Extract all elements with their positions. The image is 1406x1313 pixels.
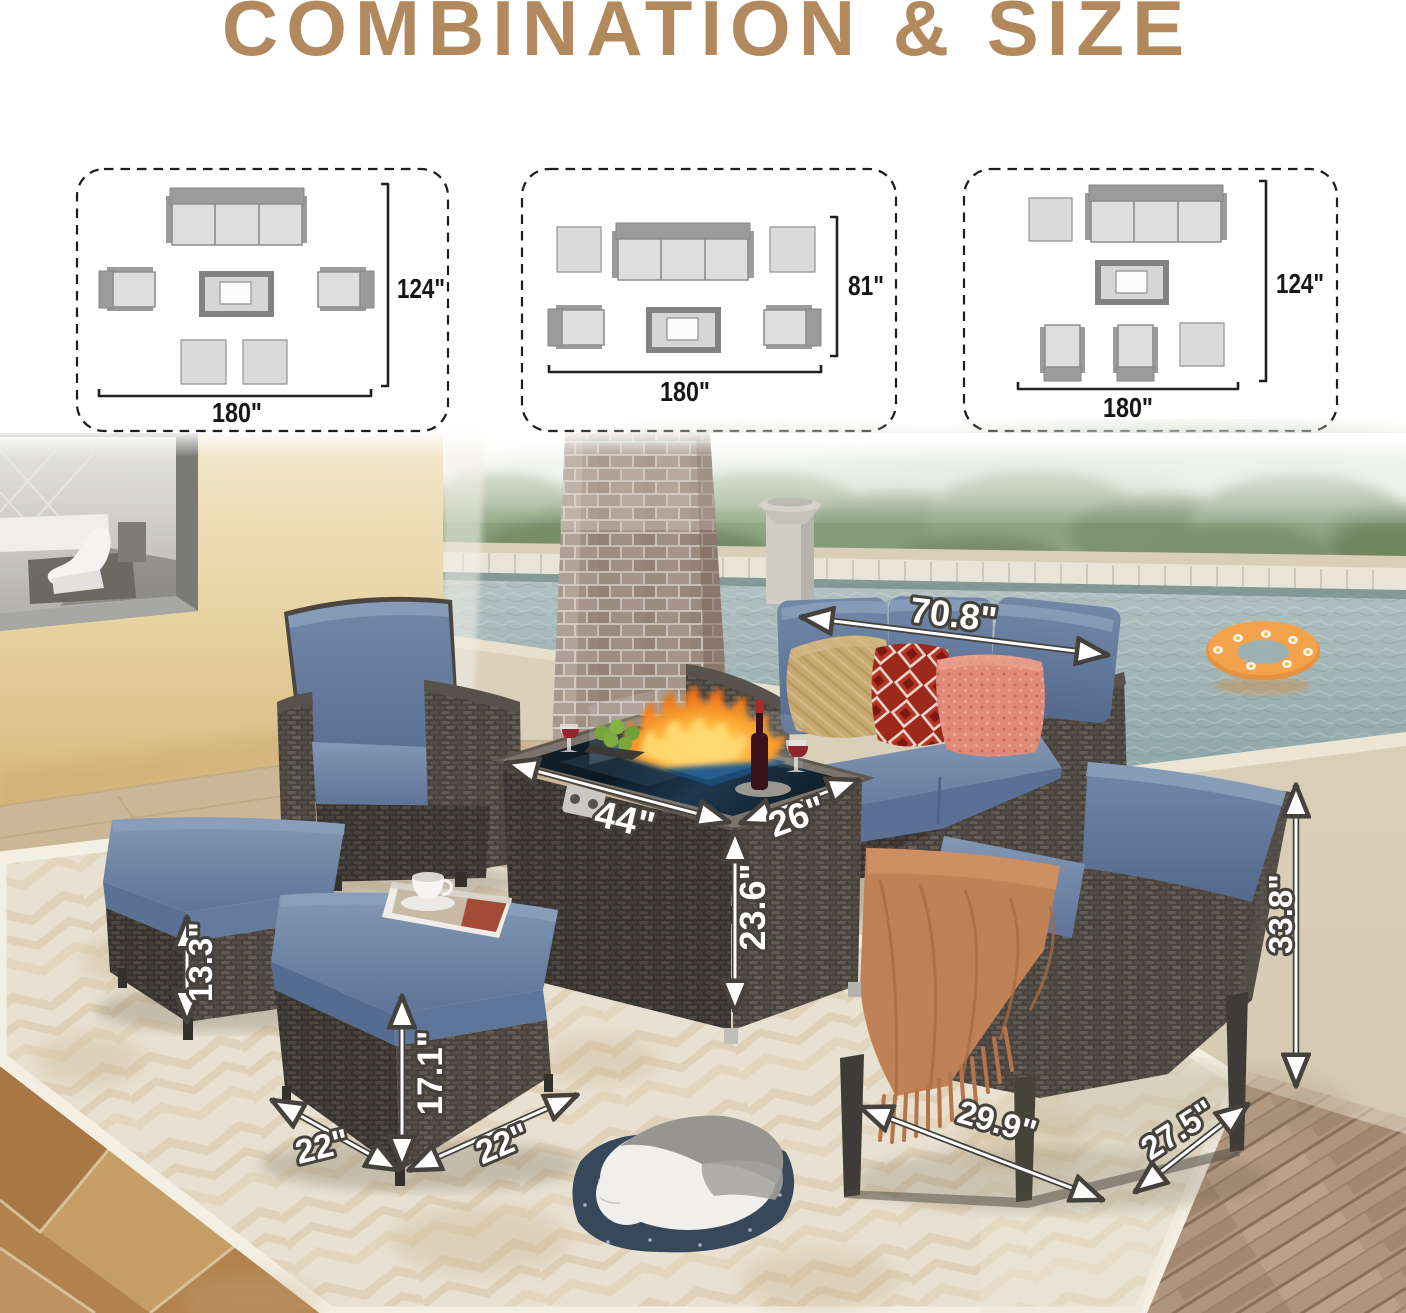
svg-text:COMBINATION & SIZE: COMBINATION & SIZE [222, 0, 1192, 72]
svg-text:17.1": 17.1" [411, 1031, 450, 1116]
svg-text:124": 124" [1276, 268, 1324, 299]
svg-text:23.6": 23.6" [732, 863, 773, 950]
svg-text:33.8": 33.8" [1262, 874, 1299, 954]
svg-text:180": 180" [1103, 392, 1153, 423]
svg-text:81": 81" [848, 270, 884, 301]
svg-text:180": 180" [212, 397, 262, 428]
svg-text:124": 124" [397, 273, 445, 304]
svg-text:180": 180" [660, 376, 710, 407]
svg-text:13.3": 13.3" [182, 922, 219, 1002]
